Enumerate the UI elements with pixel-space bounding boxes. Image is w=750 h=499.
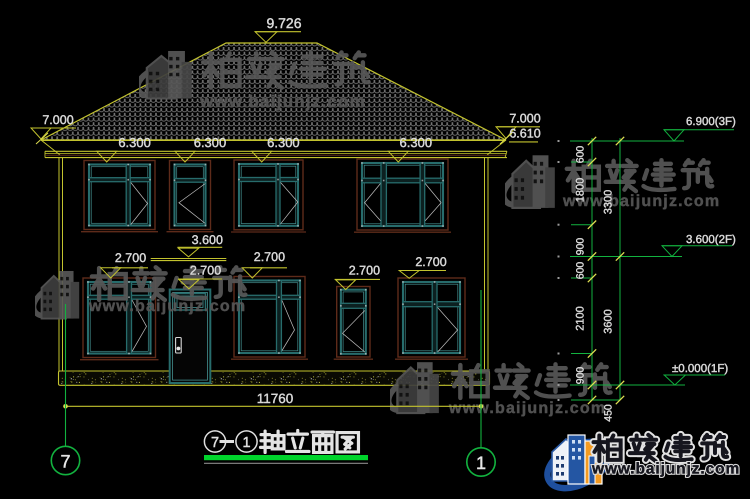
svg-text:2.700: 2.700 — [115, 251, 146, 265]
svg-text:7.000: 7.000 — [509, 112, 540, 126]
svg-text:6.300: 6.300 — [118, 135, 151, 150]
svg-text:11760: 11760 — [257, 391, 294, 406]
svg-text:1: 1 — [242, 435, 250, 451]
svg-text:600: 600 — [575, 146, 587, 164]
svg-text:1800: 1800 — [575, 178, 587, 202]
svg-text:2.700: 2.700 — [254, 250, 285, 264]
svg-text:7: 7 — [211, 435, 219, 451]
svg-text:www.baijunjz.com: www.baijunjz.com — [448, 400, 606, 417]
svg-text:www.baijunjz.com: www.baijunjz.com — [591, 461, 740, 478]
svg-text:3300: 3300 — [603, 190, 615, 214]
svg-text:3.600: 3.600 — [192, 233, 223, 247]
svg-text:2.700: 2.700 — [415, 255, 446, 269]
svg-text:7.000: 7.000 — [42, 113, 73, 127]
svg-text:450: 450 — [603, 404, 615, 422]
svg-text:9.726: 9.726 — [266, 15, 301, 31]
svg-text:2.700: 2.700 — [190, 263, 221, 277]
svg-text:900: 900 — [575, 238, 587, 256]
svg-text:2100: 2100 — [575, 306, 587, 330]
svg-text:900: 900 — [575, 367, 587, 385]
svg-text:6.300: 6.300 — [400, 135, 433, 150]
svg-text:6.610: 6.610 — [509, 127, 540, 141]
svg-text:6.300: 6.300 — [194, 135, 227, 150]
svg-text:600: 600 — [575, 262, 587, 280]
svg-text:±0.000(1F): ±0.000(1F) — [672, 363, 728, 375]
svg-text:7: 7 — [60, 452, 70, 472]
svg-text:6.300: 6.300 — [267, 135, 300, 150]
svg-text:1: 1 — [476, 453, 486, 473]
svg-text:www.baijunjz.com: www.baijunjz.com — [199, 92, 366, 111]
svg-text:6.900(3F): 6.900(3F) — [686, 116, 736, 128]
svg-text:2.700: 2.700 — [349, 264, 380, 278]
svg-text:3600: 3600 — [603, 309, 615, 333]
svg-text:3.600(2F): 3.600(2F) — [686, 234, 736, 246]
svg-text:www.baijunjz.com: www.baijunjz.com — [88, 298, 246, 315]
